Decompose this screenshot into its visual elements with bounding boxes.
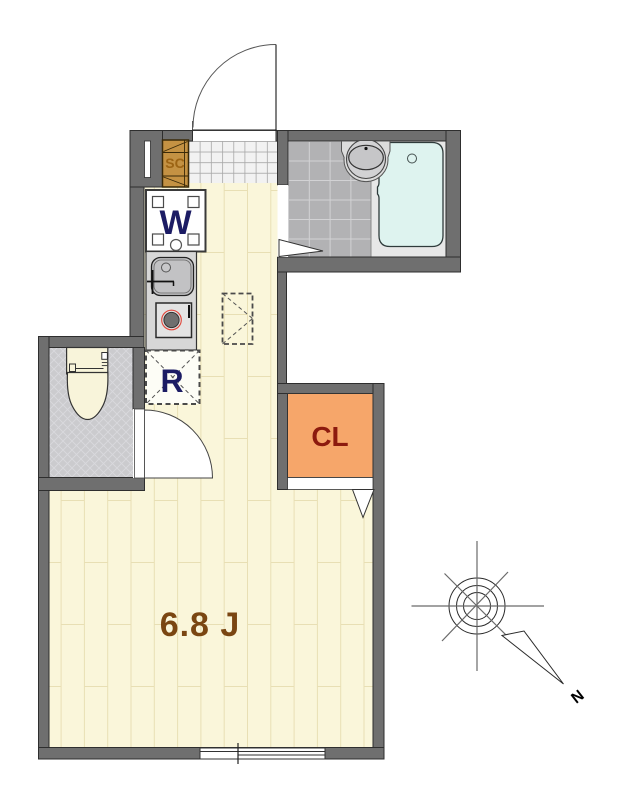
svg-text:SC: SC: [165, 155, 184, 171]
svg-text:CL: CL: [311, 421, 348, 452]
svg-text:R: R: [160, 363, 183, 399]
svg-text:6.8 J: 6.8 J: [160, 606, 241, 644]
svg-text:W: W: [159, 204, 192, 242]
